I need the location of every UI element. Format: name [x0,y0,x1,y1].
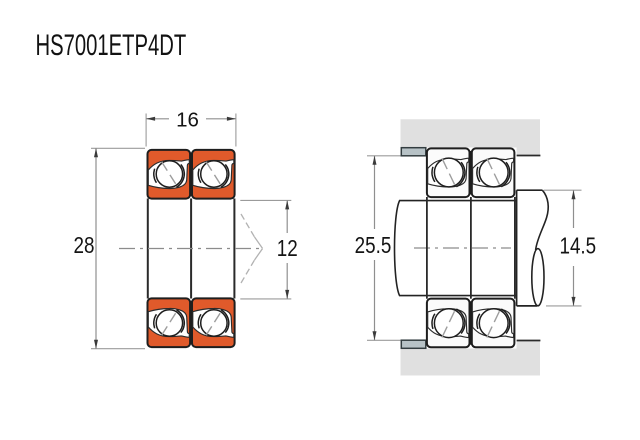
svg-text:16: 16 [176,108,199,131]
svg-text:28: 28 [74,233,95,258]
svg-text:25.5: 25.5 [355,233,392,258]
svg-text:12: 12 [277,236,298,261]
svg-text:HS7001ETP4DT: HS7001ETP4DT [36,29,187,62]
svg-text:14.5: 14.5 [559,234,596,259]
